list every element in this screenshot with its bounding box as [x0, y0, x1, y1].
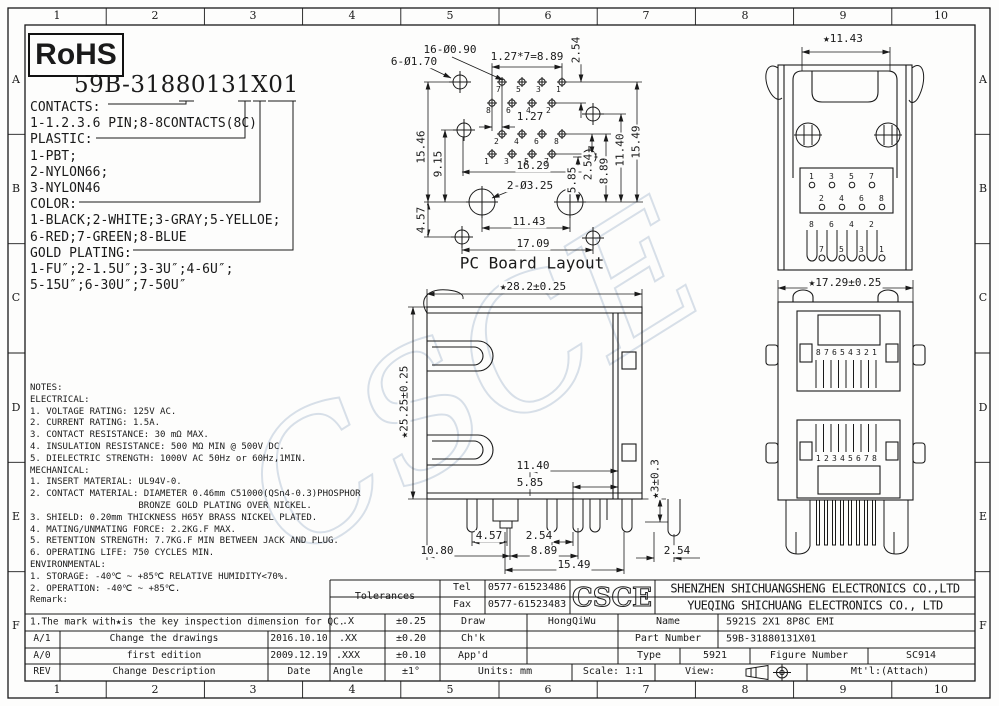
revision-rev-a0: A/0 — [33, 651, 50, 661]
frame-row-left-e: E — [12, 511, 20, 523]
frame-row-left-a: A — [12, 74, 20, 86]
pcb-dim-254-right: 2.54 — [582, 153, 595, 182]
check-label: Ch'k — [461, 634, 485, 645]
frame-col-top-3: 3 — [250, 10, 257, 22]
tol-x-value: ±0.25 — [396, 617, 426, 628]
angle-value: ±1° — [402, 667, 420, 678]
units-label: Units: mm — [478, 667, 532, 678]
type-label: Type — [637, 651, 661, 662]
csce-logo: CSCE — [572, 583, 652, 613]
frame-col-top-10: 10 — [934, 10, 948, 22]
tol-xx-value: ±0.20 — [396, 634, 426, 645]
pcb-dim-6-holes: 6-Ø1.70 — [390, 56, 438, 68]
part-number-value: 59B-31880131X01 — [726, 634, 816, 645]
pcb-dim-pitch: 1.27*7=8.89 — [490, 51, 565, 63]
frame-row-right-e: E — [979, 511, 987, 523]
revision-rev-a1: A/1 — [33, 634, 50, 644]
frame-col-bot-8: 8 — [742, 684, 749, 696]
side-dim-3: ★3±0.3 — [649, 458, 662, 500]
top-view-linework — [766, 65, 924, 270]
rohs-badge: RoHS — [28, 33, 124, 77]
figure-number-value: SC914 — [906, 651, 936, 662]
revision-desc-a1: Change the drawings — [110, 634, 219, 644]
company-name-2: YUEQING SHICHUANG ELECTRONICS CO., LTD — [687, 600, 943, 613]
tel-label: Tel — [453, 583, 471, 594]
frame-col-bot-10: 10 — [934, 684, 948, 696]
frame-col-bot-9: 9 — [840, 684, 847, 696]
side-dim-254b: 2.54 — [663, 545, 692, 557]
side-dim-1140: 11.40 — [515, 460, 550, 472]
revision-header-rev: REV — [33, 667, 50, 677]
revision-header-date: Date — [288, 667, 311, 677]
frame-row-right-b: B — [979, 183, 987, 195]
frame-row-left-b: B — [12, 183, 20, 195]
side-dim-457: 4.57 — [475, 530, 504, 542]
top-view-dim-width: ★11.43 — [822, 33, 864, 45]
revision-date-a0: 2009.12.19 — [270, 651, 327, 661]
frame-col-top-6: 6 — [545, 10, 552, 22]
scale-label: Scale: 1:1 — [583, 667, 643, 678]
pcb-dim-1549: 15.49 — [630, 124, 643, 159]
pcb-pin-numbers-g1r1: 7 5 3 1 — [496, 86, 566, 94]
front-view-port2-pins: 12345678 — [816, 455, 880, 463]
draw-value: HongQiWu — [548, 617, 596, 628]
frame-col-bot-3: 3 — [250, 684, 257, 696]
pcb-dim-889: 8.89 — [598, 157, 611, 186]
fax-label: Fax — [453, 600, 471, 611]
draw-label: Draw — [461, 617, 485, 628]
frame-col-top-8: 8 — [742, 10, 749, 22]
top-view-lead-row2: 7 5 3 1 — [819, 246, 889, 254]
pcb-dim-1546: 15.46 — [415, 129, 428, 164]
side-dim-1549: 15.49 — [556, 559, 591, 571]
type-value: 5921 — [703, 651, 727, 662]
pcb-dim-457: 4.57 — [415, 206, 428, 235]
pcb-dim-1709: 17.09 — [515, 238, 550, 250]
frame-row-right-f: F — [979, 620, 987, 632]
revision-header-desc: Change Description — [113, 667, 216, 677]
part-number-label: Part Number — [635, 634, 701, 645]
projection-view-icon — [746, 664, 791, 682]
name-label: Name — [656, 617, 680, 628]
pcb-dim-1143: 11.43 — [511, 216, 546, 228]
pcb-pin-numbers-g2r2: 1 3 5 7 — [484, 158, 554, 166]
frame-row-right-a: A — [979, 74, 987, 86]
frame-col-top-7: 7 — [643, 10, 650, 22]
frame-row-left-c: C — [12, 292, 20, 304]
view-label: View: — [685, 667, 715, 678]
top-view-lead-row1: 8 6 4 2 — [809, 221, 879, 229]
frame-col-bot-6: 6 — [545, 684, 552, 696]
tol-xxx-label: .XXX — [336, 651, 360, 662]
pcb-caption: PC Board Layout — [460, 256, 605, 273]
notes-block: NOTES: ELECTRICAL: 1. VOLTAGE RATING: 12… — [30, 383, 361, 607]
pcb-dim-16-holes: 16-Ø0.90 — [423, 44, 478, 56]
ordering-legend: CONTACTS: 1-1.2.3.6 PIN;8-8CONTACTS(8C) … — [30, 100, 280, 294]
tel-value: 0577-61523486 — [488, 583, 566, 594]
frame-row-left-d: D — [12, 402, 21, 414]
frame-col-bot-1: 1 — [54, 684, 61, 696]
frame-row-left-f: F — [12, 620, 20, 632]
pcb-dim-585: 5.85 — [566, 166, 579, 195]
frame-col-bot-7: 7 — [643, 684, 650, 696]
frame-col-top-1: 1 — [54, 10, 61, 22]
top-view-pin-row2: 2 4 6 8 — [819, 195, 889, 203]
approved-label: App'd — [458, 651, 488, 662]
front-view-dim-width: ★17.29±0.25 — [808, 277, 883, 289]
side-dim-254a: 2.54 — [525, 530, 554, 542]
frame-col-bot-5: 5 — [447, 684, 454, 696]
frame-col-top-9: 9 — [840, 10, 847, 22]
revision-desc-a0: first edition — [127, 651, 201, 661]
frame-col-bot-2: 2 — [152, 684, 159, 696]
qc-mark-note: 1.The mark with★is the key inspection di… — [30, 617, 345, 628]
side-dim-height: ★25.25±0.25 — [398, 365, 411, 440]
side-dim-585: 5.85 — [516, 477, 545, 489]
frame-row-right-d: D — [979, 402, 988, 414]
front-view-port1-pins: 87654321 — [816, 349, 880, 357]
tolerances-label: Tolerances — [355, 592, 415, 603]
part-number-title: 59B-31880131X01 — [74, 72, 299, 98]
tol-x-label: .X — [342, 617, 354, 628]
front-view-shield-teeth — [786, 500, 908, 554]
revision-date-a1: 2016.10.10 — [270, 634, 327, 644]
pcb-pin-numbers-g2r1: 2 4 6 8 — [494, 138, 564, 146]
side-dim-889: 8.89 — [530, 545, 559, 557]
pcb-dim-1140: 11.40 — [614, 132, 627, 167]
frame-row-right-c: C — [979, 292, 987, 304]
figure-number-label: Figure Number — [770, 651, 848, 662]
tol-xx-label: .XX — [339, 634, 357, 645]
pcb-pin-numbers-g1r2: 8 6 4 2 — [486, 107, 556, 115]
name-value: 5921S 2X1 8P8C EMI — [726, 617, 834, 628]
front-view-linework — [766, 290, 925, 554]
frame-col-bot-4: 4 — [349, 684, 356, 696]
frame-col-top-4: 4 — [349, 10, 356, 22]
angle-label: Angle — [333, 667, 363, 678]
engineering-drawing-sheet: CSCE — [0, 0, 999, 706]
pcb-dim-915: 9.15 — [432, 150, 445, 179]
top-view-screws — [794, 123, 902, 147]
pcb-dim-325-holes: 2-Ø3.25 — [506, 180, 554, 192]
material-label: Mt'l:(Attach) — [851, 667, 929, 678]
side-dim-1080: 10.80 — [419, 545, 454, 557]
frame-col-top-5: 5 — [447, 10, 454, 22]
fax-value: 0577-61523483 — [488, 600, 566, 611]
tol-xxx-value: ±0.10 — [396, 651, 426, 662]
pcb-dim-254-top: 2.54 — [570, 36, 583, 65]
company-name-1: SHENZHEN SHICHUANGSHENG ELECTRONICS CO.,… — [670, 583, 959, 596]
top-view-pin-row1: 1 3 5 7 — [809, 173, 879, 181]
frame-col-top-2: 2 — [152, 10, 159, 22]
top-view-dimension — [802, 47, 890, 71]
side-dim-width: ★28.2±0.25 — [499, 281, 567, 293]
